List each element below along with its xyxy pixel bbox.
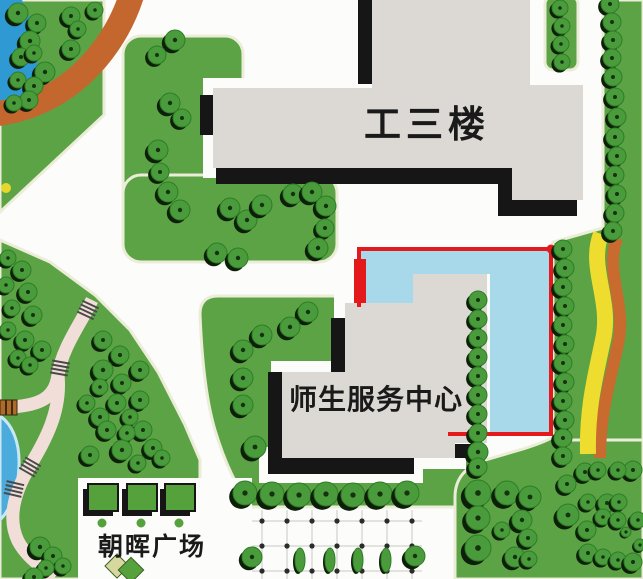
grid-dot (334, 518, 339, 523)
tree-center-dot (241, 376, 245, 380)
bridge-icon (0, 400, 17, 415)
tree-center-dot (613, 173, 617, 177)
tree-center-dot (560, 60, 564, 64)
tree-center-dot (20, 268, 24, 272)
tree-center-dot (616, 518, 620, 522)
tree-center-dot (561, 361, 565, 365)
grid-dot (334, 568, 339, 573)
tree-center-dot (105, 428, 109, 432)
tree-center-dot (611, 229, 615, 233)
tree-center-dot (6, 256, 10, 260)
tree-center-dot (160, 456, 164, 460)
tree-center-dot (413, 554, 417, 558)
campus-map: 工三楼 师生服务中心 朝晖广场 (0, 0, 643, 579)
tree-center-dot (559, 42, 563, 46)
plaza-square-icon (88, 484, 118, 511)
tree-center-dot (324, 204, 328, 208)
plaza-dot-icon (137, 519, 146, 528)
campus-map-svg (0, 0, 643, 579)
tree-center-dot (583, 470, 587, 474)
tree-center-dot (32, 51, 36, 55)
bush-icon (295, 548, 305, 572)
tree-center-dot (118, 353, 122, 357)
tree-center-dot (173, 38, 177, 42)
tree-center-dot (32, 575, 36, 579)
building-label-gongsanlou: 工三楼 (352, 106, 502, 143)
tree-center-dot (513, 555, 517, 559)
tree-center-dot (560, 24, 564, 28)
plaza-dot-icon (98, 519, 107, 528)
tree-center-dot (605, 501, 609, 505)
bush-icon (325, 548, 335, 572)
tree-center-dot (236, 256, 240, 260)
tree-center-dot (291, 192, 295, 196)
tree-center-dot (404, 490, 409, 495)
grid-dot (259, 568, 264, 573)
tree-center-dot (76, 27, 80, 31)
tree-center-dot (250, 555, 254, 559)
tree-center-dot (141, 428, 145, 432)
tree-center-dot (377, 491, 382, 496)
tree-center-dot (528, 495, 533, 500)
plaza-label: 朝晖广场 (88, 535, 216, 560)
tree-center-dot (608, 2, 612, 6)
tree-body (601, 0, 619, 13)
tree-center-dot (601, 555, 605, 559)
tree-center-dot (168, 101, 172, 105)
plaza-square-icon (165, 484, 195, 511)
tree-center-dot (566, 513, 571, 518)
tree-center-dot (611, 75, 615, 79)
tree-center-dot (40, 348, 44, 352)
tree-center-dot (596, 468, 600, 472)
tree-center-dot (10, 306, 14, 310)
tree-center-dot (93, 8, 97, 12)
tree-center-dot (613, 135, 617, 139)
tree-center-dot (563, 266, 567, 270)
tree-center-dot (561, 399, 565, 403)
plaza-square-icon (127, 484, 157, 511)
tree-center-dot (31, 313, 35, 317)
tree-center-dot (563, 304, 567, 308)
tree-center-dot (51, 554, 55, 558)
tree-center-dot (610, 56, 614, 60)
tree-center-dot (98, 385, 102, 389)
grid-dot (384, 518, 389, 523)
tree-center-dot (166, 190, 170, 194)
yellow-dot-icon (1, 183, 11, 193)
tree-center-dot (561, 454, 565, 458)
tree-center-dot (636, 518, 640, 522)
tree-center-dot (228, 206, 232, 210)
tree-center-dot (476, 465, 480, 469)
tree-center-dot (85, 401, 89, 405)
tree-center-dot (12, 101, 16, 105)
tree-center-dot (16, 356, 20, 360)
tree-center-dot (136, 461, 140, 465)
tree-center-dot (155, 53, 159, 57)
tree-center-dot (615, 115, 619, 119)
tree-center-dot (260, 203, 264, 207)
tree-center-dot (16, 78, 20, 82)
tree-center-dot (586, 500, 590, 504)
tree-center-dot (476, 298, 480, 302)
tree-center-dot (617, 500, 621, 504)
tree-center-dot (615, 154, 619, 158)
tree-center-dot (561, 436, 565, 440)
tree-center-dot (69, 47, 73, 51)
tree-center-dot (475, 545, 481, 551)
tree-center-dot (19, 55, 23, 59)
grid-dot (409, 518, 414, 523)
tree-center-dot (526, 536, 530, 540)
grid-dot (309, 543, 314, 548)
tree-center-dot (128, 415, 132, 419)
tree-center-dot (561, 285, 565, 289)
tree-center-dot (563, 342, 567, 346)
grid-dot (309, 568, 314, 573)
grid-dot (284, 518, 289, 523)
tree-center-dot (138, 368, 142, 372)
tree-center-dot (180, 116, 184, 120)
tree-center-dot (615, 192, 619, 196)
tree-center-dot (323, 226, 327, 230)
tree-center-dot (4, 283, 8, 287)
tree-center-dot (43, 70, 47, 74)
tree-center-dot (610, 20, 614, 24)
plaza-grid (252, 510, 422, 579)
tree-center-dot (563, 418, 567, 422)
tree-center-dot (306, 310, 310, 314)
grid-dot (259, 543, 264, 548)
tree-center-dot (631, 468, 635, 472)
tree-center-dot (586, 551, 590, 555)
tree-center-dot (475, 490, 481, 496)
tree-center-dot (561, 323, 565, 327)
tree-center-dot (520, 518, 524, 522)
tree-icon (402, 546, 425, 569)
tree-center-dot (269, 491, 274, 496)
tree-center-dot (561, 247, 565, 251)
tree-center-dot (151, 446, 155, 450)
tree-center-dot (27, 98, 31, 102)
grid-dot (359, 543, 364, 548)
tree-center-dot (296, 492, 301, 497)
tree-center-dot (158, 170, 162, 174)
tree-center-dot (88, 453, 92, 457)
tree-center-dot (323, 491, 328, 496)
tree-center-dot (585, 528, 589, 532)
tree-center-dot (500, 528, 504, 532)
tree-center-dot (310, 190, 314, 194)
tree-center-dot (120, 448, 124, 452)
tree-center-dot (476, 450, 480, 454)
tree-center-dot (616, 558, 620, 562)
tree-center-dot (241, 403, 245, 407)
tree-center-dot (69, 14, 73, 18)
tree-center-dot (98, 415, 102, 419)
tree-center-dot (101, 368, 105, 372)
tree-center-dot (6, 328, 10, 332)
tree-center-dot (242, 490, 247, 495)
tree-center-dot (28, 39, 32, 43)
tree-center-dot (253, 445, 258, 450)
tree-center-dot (316, 246, 320, 250)
tree-center-dot (475, 515, 480, 520)
tree-center-dot (288, 325, 292, 329)
grid-dot (259, 518, 264, 523)
tree-center-dot (241, 348, 245, 352)
tree-center-dot (156, 148, 160, 152)
tree-center-dot (476, 317, 480, 321)
bush-icon (353, 548, 363, 572)
tree-center-dot (476, 374, 480, 378)
tree-center-dot (44, 566, 48, 570)
tree-center-dot (350, 492, 355, 497)
tree-center-dot (476, 336, 480, 340)
tree-center-dot (563, 380, 567, 384)
tree-center-dot (115, 401, 119, 405)
tree-center-dot (245, 218, 249, 222)
tree-center-dot (215, 251, 219, 255)
tree-center-dot (527, 557, 531, 561)
entrance-marker (354, 259, 366, 303)
tree-center-dot (138, 398, 142, 402)
grid-dot (359, 518, 364, 523)
tree-center-dot (61, 564, 65, 568)
tree-center-dot (476, 431, 480, 435)
tree-center-dot (611, 38, 615, 42)
tree-center-dot (504, 490, 509, 495)
tree-center-dot (558, 6, 562, 10)
tree-center-dot (631, 560, 635, 564)
tree-center-dot (178, 208, 182, 212)
bush-icon (381, 548, 391, 572)
tree-center-dot (624, 530, 627, 533)
tree-center-dot (260, 333, 264, 337)
grid-dot (284, 568, 289, 573)
tree-center-dot (613, 95, 617, 99)
tree-center-dot (16, 11, 20, 15)
grid-dot (284, 543, 289, 548)
grid-dot (334, 543, 339, 548)
tree-center-dot (120, 381, 124, 385)
tree-center-dot (23, 338, 27, 342)
tree-center-dot (638, 543, 641, 546)
grid-dot (309, 518, 314, 523)
tree-center-dot (125, 431, 129, 435)
tree-center-dot (38, 545, 42, 549)
tree-center-dot (613, 211, 617, 215)
tree-center-dot (101, 338, 105, 342)
tree-center-dot (565, 482, 569, 486)
tree-center-dot (476, 355, 480, 359)
tree-center-dot (26, 290, 30, 294)
building-label-service-center: 师生服务中心 (270, 386, 482, 414)
tree-center-dot (28, 363, 32, 367)
tree-center-dot (616, 468, 620, 472)
tree-center-dot (35, 21, 39, 25)
plaza-dot-icon (175, 519, 184, 528)
tree-center-dot (32, 84, 36, 88)
tree-center-dot (601, 515, 605, 519)
